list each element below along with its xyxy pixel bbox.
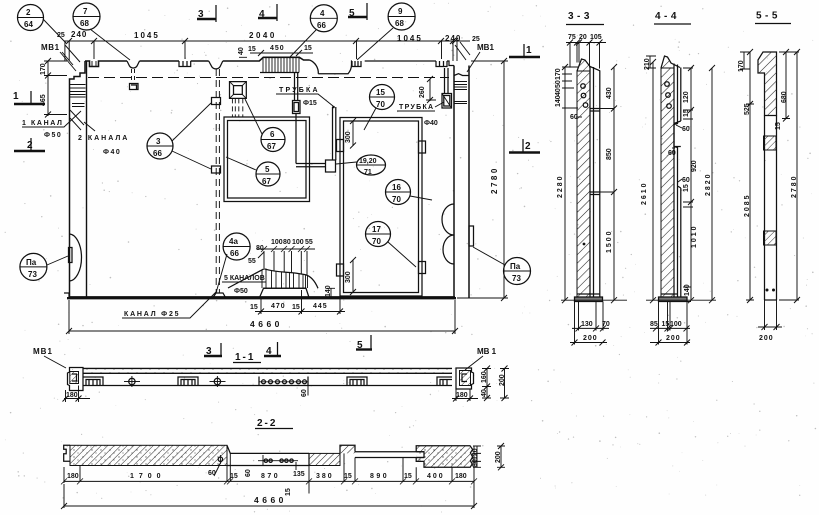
svg-text:МВ 1: МВ 1 [477, 347, 497, 356]
svg-text:140: 140 [555, 95, 562, 107]
svg-text:15: 15 [683, 109, 690, 117]
svg-text:400: 400 [427, 473, 445, 480]
svg-text:Па: Па [510, 262, 521, 271]
svg-text:15: 15 [662, 321, 670, 328]
svg-text:19,20: 19,20 [359, 158, 377, 165]
svg-text:300: 300 [345, 131, 352, 143]
svg-text:70: 70 [392, 195, 401, 204]
svg-text:200: 200 [583, 335, 598, 342]
svg-text:1045: 1045 [134, 31, 160, 40]
svg-text:25: 25 [472, 36, 480, 43]
svg-text:2: 2 [525, 141, 531, 152]
svg-text:170: 170 [555, 68, 562, 80]
svg-text:40: 40 [481, 389, 488, 397]
svg-text:67: 67 [267, 142, 276, 151]
svg-text:2 КАНАЛА: 2 КАНАЛА [78, 135, 129, 142]
svg-text:1045: 1045 [397, 34, 423, 43]
svg-text:5: 5 [265, 165, 270, 174]
svg-text:71: 71 [364, 169, 372, 176]
svg-text:160: 160 [481, 371, 488, 383]
svg-text:80: 80 [283, 239, 291, 246]
svg-text:430: 430 [606, 87, 613, 99]
svg-text:2085: 2085 [744, 193, 751, 217]
svg-text:100: 100 [670, 321, 682, 328]
svg-text:2610: 2610 [641, 181, 648, 205]
svg-text:180: 180 [456, 392, 468, 399]
svg-text:80: 80 [472, 459, 479, 467]
svg-text:120: 120 [683, 91, 690, 103]
svg-text:70: 70 [602, 321, 610, 328]
svg-text:МВ1: МВ1 [33, 347, 53, 356]
svg-text:Ф15: Ф15 [303, 100, 317, 107]
svg-text:60: 60 [208, 470, 216, 477]
svg-text:40: 40 [238, 47, 245, 55]
svg-text:66: 66 [153, 149, 162, 158]
svg-text:170: 170 [40, 63, 47, 75]
svg-text:60: 60 [682, 126, 690, 133]
svg-text:4: 4 [320, 9, 325, 18]
svg-text:470: 470 [271, 303, 286, 310]
svg-text:3-3: 3-3 [568, 11, 593, 22]
svg-text:445: 445 [313, 303, 328, 310]
svg-text:68: 68 [395, 19, 404, 28]
svg-text:60: 60 [570, 114, 578, 121]
svg-text:60: 60 [682, 177, 690, 184]
svg-text:2820: 2820 [705, 172, 712, 196]
svg-text:15: 15 [248, 46, 256, 53]
svg-text:2: 2 [26, 8, 31, 17]
svg-text:130: 130 [581, 321, 593, 328]
svg-text:4660: 4660 [254, 495, 287, 505]
svg-text:15: 15 [292, 304, 300, 311]
svg-text:73: 73 [28, 270, 37, 279]
svg-text:260: 260 [419, 86, 426, 98]
svg-text:55: 55 [248, 258, 256, 265]
svg-text:60: 60 [245, 469, 252, 477]
svg-text:210: 210 [644, 58, 651, 70]
svg-text:66: 66 [317, 21, 326, 30]
svg-text:140: 140 [325, 285, 332, 297]
svg-text:100: 100 [292, 239, 304, 246]
svg-text:МВ1: МВ1 [41, 43, 60, 52]
svg-text:2780: 2780 [791, 174, 798, 198]
svg-text:380: 380 [316, 473, 334, 480]
svg-text:200: 200 [499, 374, 506, 386]
svg-text:2040: 2040 [249, 31, 277, 40]
svg-text:Па: Па [26, 258, 37, 267]
svg-text:7: 7 [83, 7, 88, 16]
svg-text:85: 85 [650, 321, 658, 328]
svg-text:Ф40: Ф40 [103, 149, 121, 156]
svg-text:920: 920 [691, 160, 698, 172]
svg-text:3: 3 [156, 137, 161, 146]
svg-text:15: 15 [230, 473, 238, 480]
svg-text:Ф50: Ф50 [234, 288, 248, 295]
svg-text:15: 15 [250, 304, 258, 311]
svg-text:180: 180 [67, 473, 79, 480]
svg-text:200: 200 [666, 335, 681, 342]
svg-text:1500: 1500 [606, 229, 613, 253]
svg-text:1-1: 1-1 [235, 352, 255, 363]
svg-text:Ф50: Ф50 [44, 132, 62, 139]
svg-text:ТРУБКА: ТРУБКА [279, 87, 320, 94]
svg-text:200: 200 [495, 451, 502, 463]
svg-text:200: 200 [759, 335, 774, 342]
svg-text:4660: 4660 [250, 319, 283, 329]
svg-text:15: 15 [404, 473, 412, 480]
svg-text:1: 1 [526, 45, 532, 56]
svg-text:55: 55 [305, 239, 313, 246]
svg-text:870: 870 [261, 473, 280, 480]
svg-text:170: 170 [738, 60, 745, 72]
svg-text:2: 2 [27, 140, 33, 151]
svg-text:15: 15 [775, 122, 782, 130]
svg-text:2-2: 2-2 [257, 418, 277, 429]
svg-text:135: 135 [293, 471, 305, 478]
svg-text:180: 180 [455, 473, 467, 480]
svg-text:15: 15 [344, 473, 352, 480]
svg-text:890: 890 [370, 473, 389, 480]
svg-text:70: 70 [376, 100, 385, 109]
svg-text:5 КАНАЛОВ: 5 КАНАЛОВ [224, 275, 265, 282]
svg-text:100: 100 [271, 239, 283, 246]
svg-text:60: 60 [301, 389, 308, 397]
svg-text:1700: 1700 [130, 473, 166, 480]
svg-text:73: 73 [512, 274, 521, 283]
svg-text:180: 180 [66, 392, 78, 399]
svg-text:850: 850 [606, 148, 613, 160]
svg-text:240: 240 [445, 34, 461, 43]
svg-text:64: 64 [24, 20, 33, 29]
svg-text:66: 66 [230, 249, 239, 258]
svg-text:240: 240 [71, 30, 87, 39]
svg-text:68: 68 [80, 19, 89, 28]
svg-text:70: 70 [372, 237, 381, 246]
svg-text:16: 16 [392, 183, 401, 192]
svg-text:680: 680 [781, 91, 788, 103]
svg-text:2280: 2280 [557, 174, 564, 198]
svg-text:80: 80 [256, 245, 264, 252]
svg-text:17: 17 [372, 225, 381, 234]
svg-text:120: 120 [472, 448, 479, 460]
svg-text:40: 40 [555, 88, 562, 96]
svg-text:450: 450 [270, 45, 285, 52]
svg-text:300: 300 [345, 271, 352, 283]
svg-text:4а: 4а [229, 237, 238, 246]
svg-text:4-4: 4-4 [655, 11, 680, 22]
svg-text:5-5: 5-5 [756, 11, 781, 22]
svg-text:ТРУБКА: ТРУБКА [399, 104, 434, 111]
svg-text:15: 15 [304, 45, 312, 52]
svg-text:6: 6 [270, 130, 275, 139]
svg-text:15: 15 [683, 184, 690, 192]
svg-text:КАНАЛ Ф25: КАНАЛ Ф25 [124, 311, 180, 318]
svg-text:2780: 2780 [490, 166, 499, 194]
svg-text:Ф40: Ф40 [424, 120, 438, 127]
svg-text:67: 67 [262, 177, 271, 186]
svg-text:50: 50 [555, 80, 562, 88]
svg-text:15: 15 [376, 88, 385, 97]
svg-text:1010: 1010 [691, 224, 698, 248]
svg-text:140: 140 [684, 284, 691, 296]
svg-text:МВ1: МВ1 [477, 43, 494, 52]
svg-text:9: 9 [398, 7, 403, 16]
svg-text:1: 1 [13, 91, 19, 102]
svg-text:1 КАНАЛ: 1 КАНАЛ [22, 120, 63, 127]
svg-text:60: 60 [668, 150, 676, 157]
